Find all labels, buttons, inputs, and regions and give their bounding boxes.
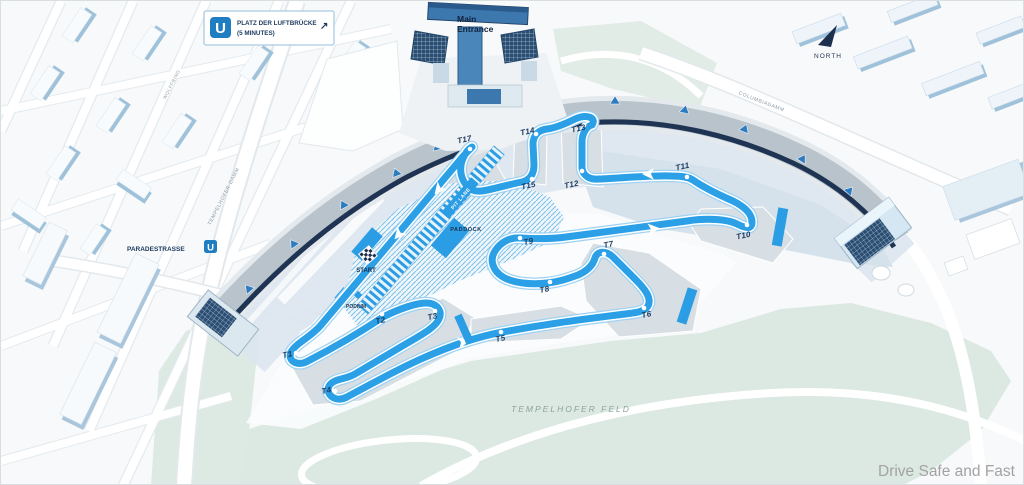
entrance-east-wing <box>501 29 538 63</box>
ubahn-box-line1: PLATZ DER LUFTBRÜCKE <box>237 18 317 27</box>
entrance-forecourt-block <box>467 89 501 104</box>
external-arrow-icon: ↗ <box>320 21 328 32</box>
terminal-round-structure <box>872 266 890 280</box>
map-canvas: PIT LANE PADDOCK START PODIUM T1 T2 T3 T… <box>1 1 1024 485</box>
ubahn-info-box: U PLATZ DER LUFTBRÜCKE (5 MINUTES) ↗ <box>204 11 334 45</box>
main-entrance-line2: Entrance <box>457 24 494 34</box>
circuit-map: PIT LANE PADDOCK START PODIUM T1 T2 T3 T… <box>0 0 1024 485</box>
tempelhofer-feld-label: TEMPELHOFER FELD <box>511 404 631 414</box>
north-label: NORTH <box>814 53 842 60</box>
u-bahn-icon-letter: U <box>207 243 214 254</box>
main-entrance-line1: Main <box>457 14 476 24</box>
ubahn-box-line2: (5 MINUTES) <box>237 30 275 37</box>
podium-label: PODIUM <box>346 304 366 310</box>
terminal-round-structure <box>898 284 914 296</box>
u-bahn-icon-letter: U <box>215 20 226 37</box>
paradestrasse-label: PARADESTRASSE <box>127 246 185 253</box>
entrance-hall <box>458 27 482 85</box>
entrance-west-wing <box>411 31 448 65</box>
paddock-label: PADDOCK <box>450 227 482 233</box>
start-label: START <box>356 268 376 274</box>
watermark: Drive Safe and Fast <box>878 463 1016 480</box>
